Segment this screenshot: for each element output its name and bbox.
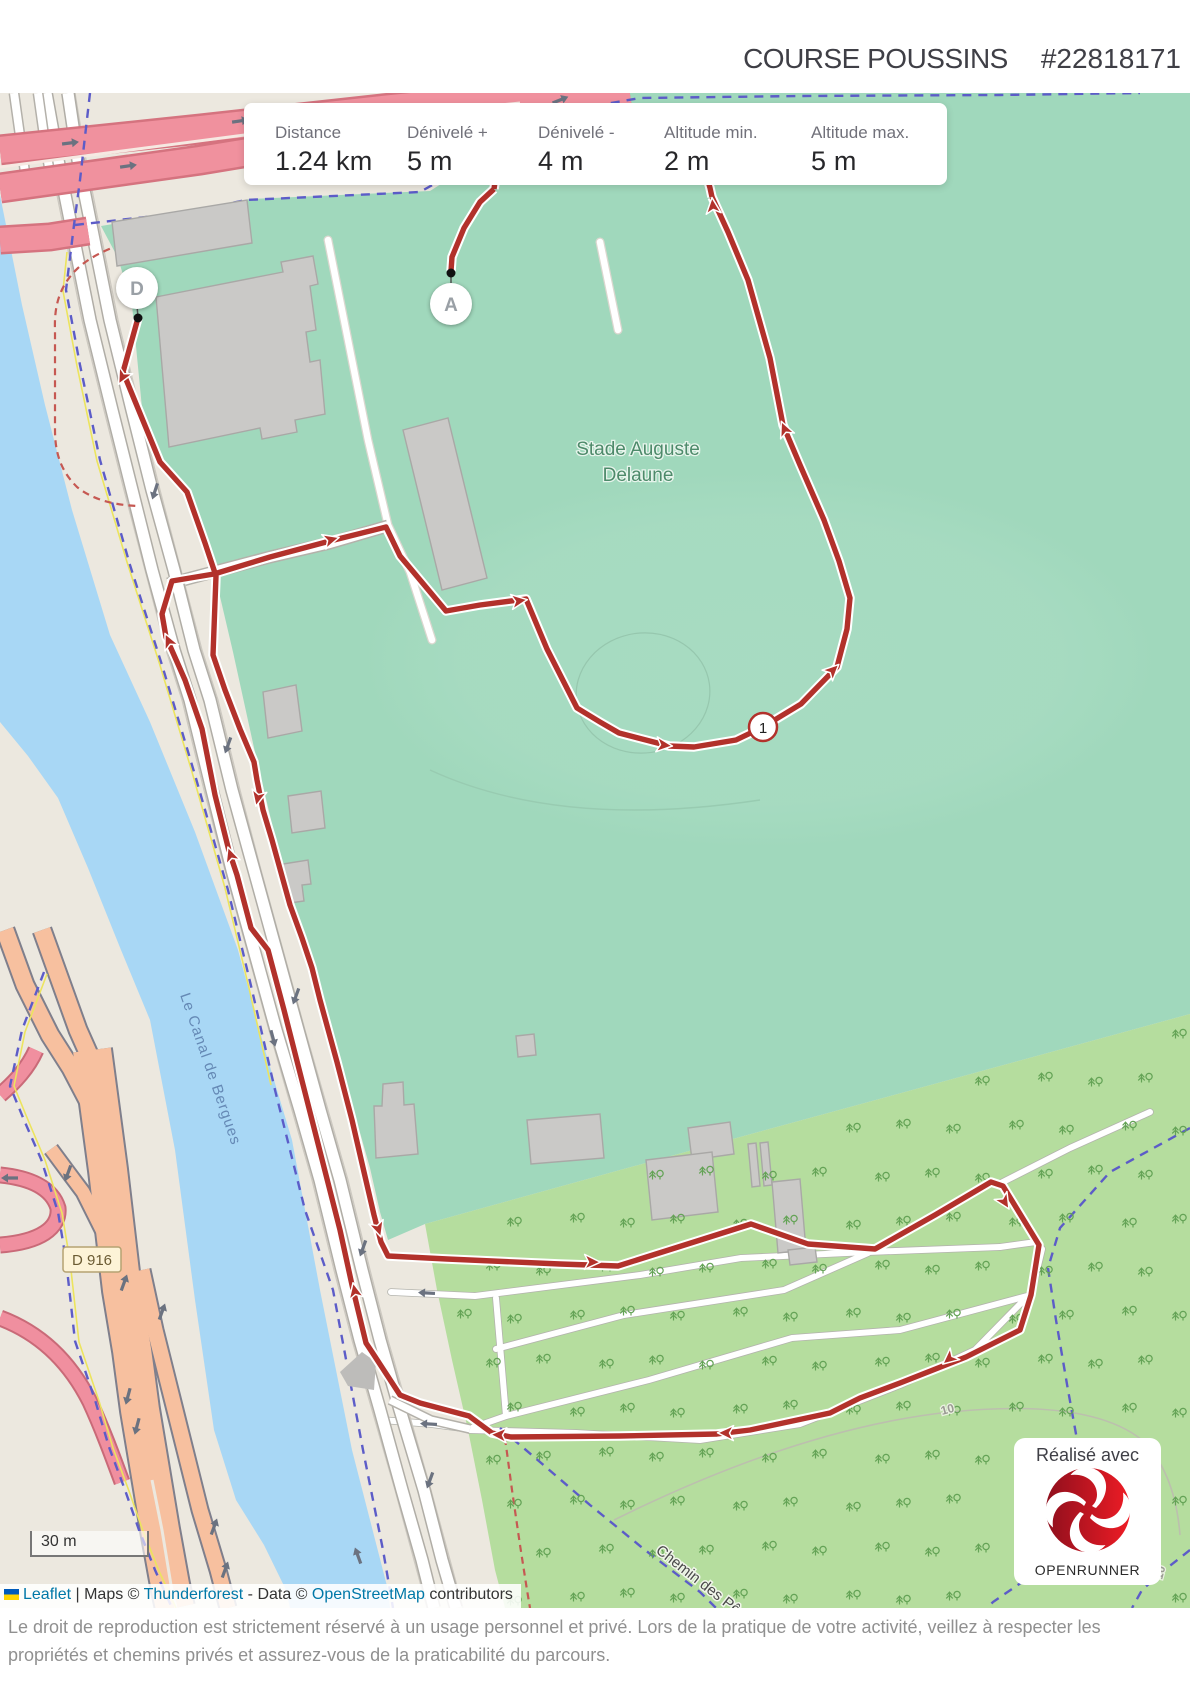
svg-text:A: A xyxy=(444,295,458,316)
svg-text:Delaune: Delaune xyxy=(603,465,674,486)
svg-text:D: D xyxy=(130,279,144,300)
svg-text:Stade Auguste: Stade Auguste xyxy=(576,439,700,460)
svg-text:D 916: D 916 xyxy=(72,1252,112,1269)
svg-text:1: 1 xyxy=(759,720,767,737)
